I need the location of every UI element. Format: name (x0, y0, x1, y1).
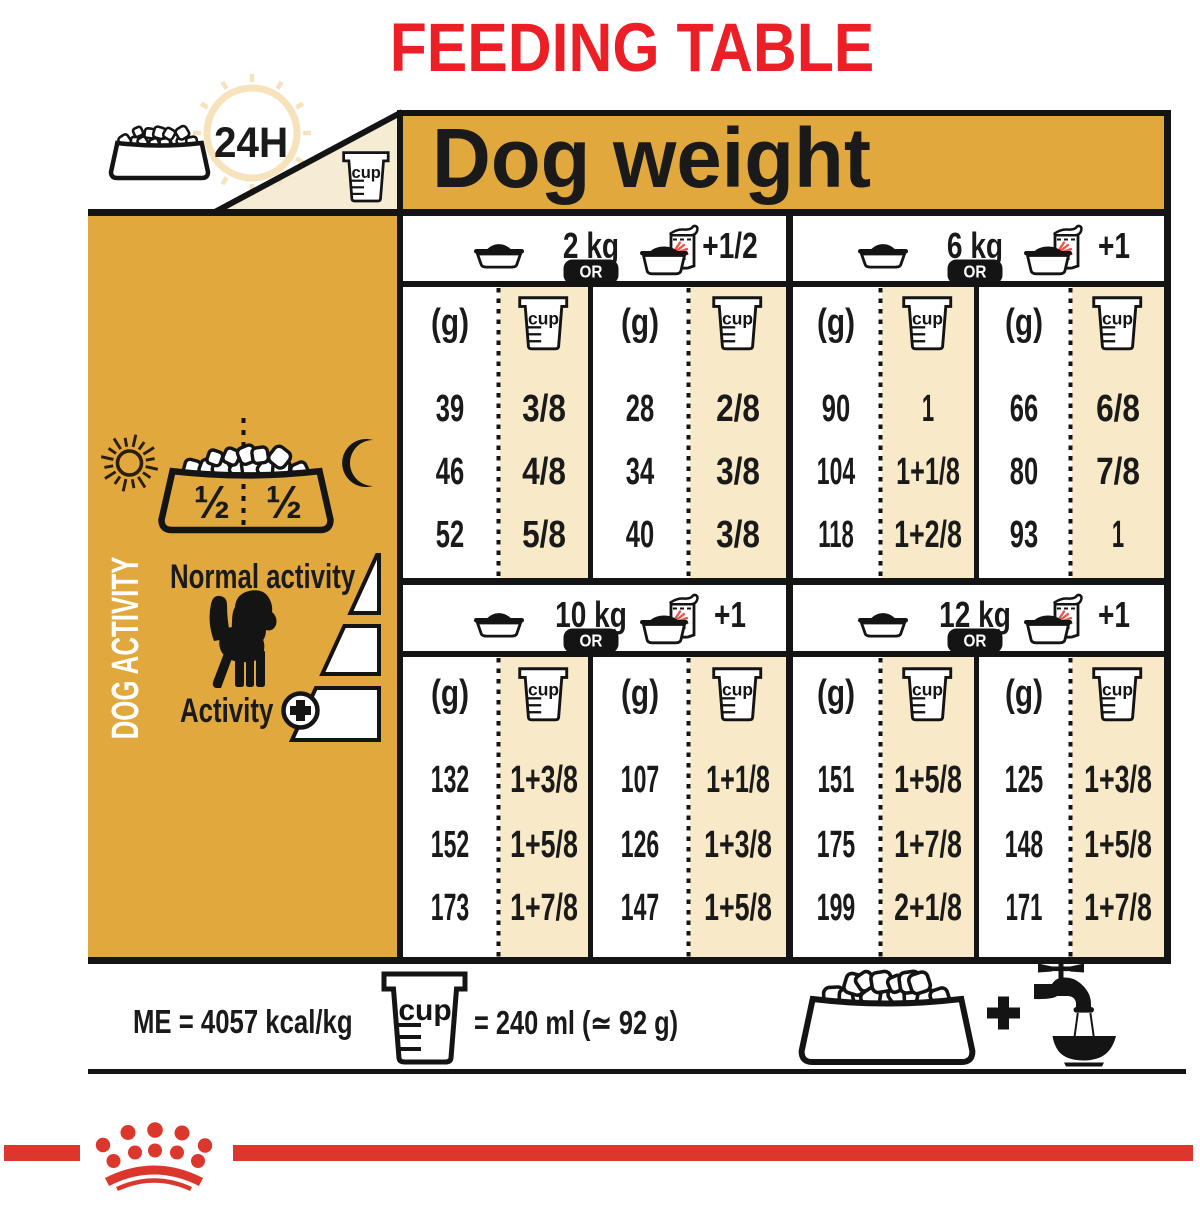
svg-text:(g): (g) (817, 302, 855, 344)
svg-text:147: 147 (621, 886, 659, 928)
svg-text:(g): (g) (1005, 302, 1043, 344)
svg-text:24H: 24H (214, 118, 288, 166)
svg-text:1: 1 (1112, 513, 1124, 556)
svg-text:28: 28 (626, 387, 654, 429)
svg-text:1+7/8: 1+7/8 (1084, 885, 1152, 928)
svg-text:199: 199 (817, 886, 855, 928)
svg-text:1+5/8: 1+5/8 (510, 822, 578, 865)
svg-text:152: 152 (431, 823, 469, 865)
svg-text:151: 151 (818, 758, 855, 801)
svg-text:1: 1 (922, 387, 934, 430)
svg-text:1+3/8: 1+3/8 (1084, 757, 1152, 800)
svg-text:3/8: 3/8 (716, 513, 760, 555)
svg-text:½: ½ (194, 476, 230, 528)
svg-text:1+3/8: 1+3/8 (704, 822, 772, 865)
svg-text:OR: OR (964, 630, 987, 650)
svg-text:80: 80 (1010, 450, 1038, 492)
svg-text:1+2/8: 1+2/8 (894, 512, 962, 555)
svg-text:126: 126 (621, 823, 659, 865)
svg-text:1+5/8: 1+5/8 (1084, 822, 1152, 865)
svg-text:1+5/8: 1+5/8 (704, 885, 772, 928)
svg-text:+1: +1 (1098, 226, 1130, 266)
svg-text:1+5/8: 1+5/8 (894, 757, 962, 800)
svg-text:171: 171 (1006, 886, 1043, 929)
svg-text:½: ½ (266, 476, 302, 528)
svg-text:1+1/8: 1+1/8 (706, 758, 770, 800)
svg-text:148: 148 (1005, 823, 1043, 865)
svg-text:3/8: 3/8 (716, 450, 760, 492)
svg-text:1+7/8: 1+7/8 (894, 822, 962, 865)
svg-text:ME = 4057 kcal/kg: ME = 4057 kcal/kg (133, 1004, 353, 1041)
svg-text:2+1/8: 2+1/8 (894, 885, 962, 928)
svg-text:+1: +1 (714, 595, 746, 635)
svg-text:66: 66 (1010, 387, 1038, 429)
svg-text:FEEDING TABLE: FEEDING TABLE (390, 8, 875, 86)
svg-text:93: 93 (1010, 513, 1038, 555)
svg-text:OR: OR (580, 630, 603, 650)
svg-text:+1: +1 (1098, 595, 1130, 635)
svg-text:118: 118 (818, 513, 854, 556)
svg-text:90: 90 (822, 387, 850, 429)
svg-text:34: 34 (626, 450, 654, 492)
svg-text:7/8: 7/8 (1096, 450, 1140, 492)
svg-text:OR: OR (580, 261, 603, 281)
svg-text:6/8: 6/8 (1096, 387, 1140, 429)
svg-text:(g): (g) (621, 302, 659, 344)
svg-text:= 240 ml (≃ 92 g): = 240 ml (≃ 92 g) (474, 1005, 678, 1042)
svg-text:52: 52 (436, 513, 464, 555)
svg-text:OR: OR (964, 261, 987, 281)
svg-text:Normal activity: Normal activity (170, 559, 355, 596)
svg-text:40: 40 (626, 513, 654, 555)
svg-text:1+7/8: 1+7/8 (510, 885, 578, 928)
svg-text:175: 175 (817, 823, 855, 865)
svg-text:(g): (g) (431, 302, 469, 344)
svg-text:107: 107 (621, 758, 659, 800)
svg-text:39: 39 (436, 387, 464, 429)
svg-text:1+3/8: 1+3/8 (510, 757, 578, 800)
svg-text:(g): (g) (1005, 673, 1043, 715)
svg-text:+1/2: +1/2 (702, 226, 757, 266)
svg-text:104: 104 (817, 450, 856, 492)
svg-text:(g): (g) (621, 673, 659, 715)
svg-text:Dog weight: Dog weight (432, 111, 871, 205)
svg-text:3/8: 3/8 (522, 387, 566, 429)
svg-text:125: 125 (1005, 758, 1043, 800)
svg-text:5/8: 5/8 (522, 513, 566, 555)
svg-text:173: 173 (431, 886, 469, 928)
svg-text:2/8: 2/8 (716, 387, 760, 429)
svg-text:(g): (g) (817, 673, 855, 715)
svg-text:4/8: 4/8 (522, 450, 566, 492)
svg-text:DOG ACTIVITY: DOG ACTIVITY (104, 556, 146, 739)
svg-text:132: 132 (431, 758, 469, 800)
svg-text:(g): (g) (431, 673, 469, 715)
svg-text:1+1/8: 1+1/8 (896, 450, 960, 492)
svg-text:Activity: Activity (180, 693, 273, 730)
svg-text:46: 46 (436, 450, 464, 492)
